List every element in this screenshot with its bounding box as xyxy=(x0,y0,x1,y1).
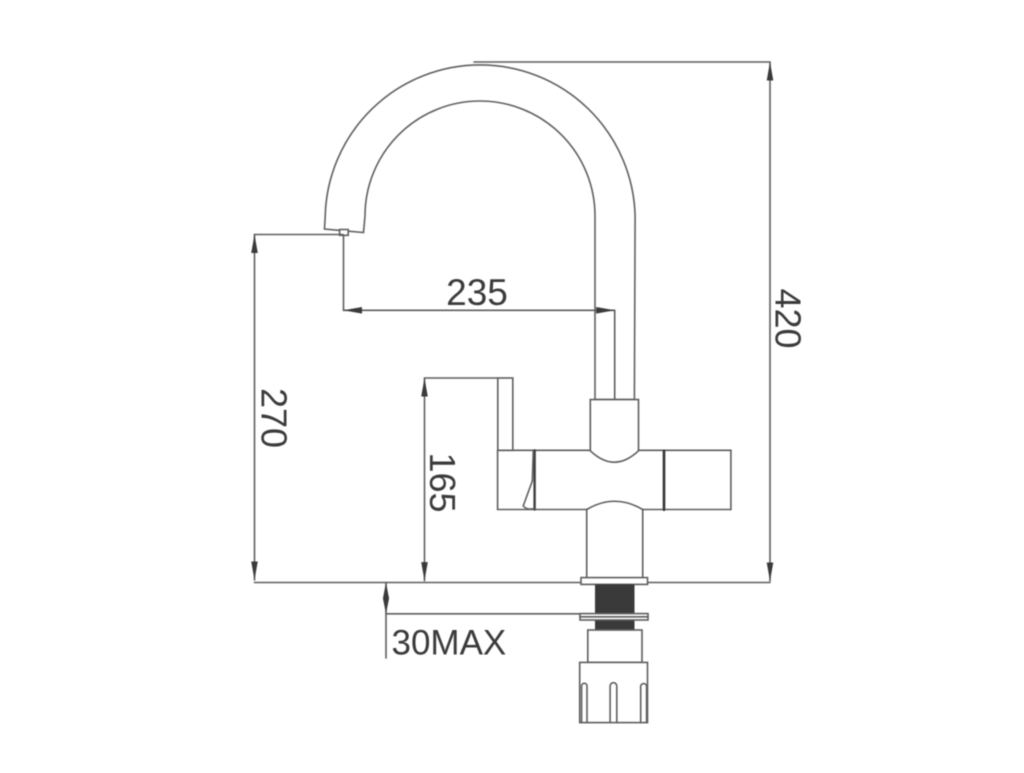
svg-text:270: 270 xyxy=(253,388,294,448)
svg-text:235: 235 xyxy=(446,272,508,313)
svg-text:165: 165 xyxy=(422,452,463,512)
svg-text:30MAX: 30MAX xyxy=(392,624,507,663)
svg-text:420: 420 xyxy=(767,288,808,348)
